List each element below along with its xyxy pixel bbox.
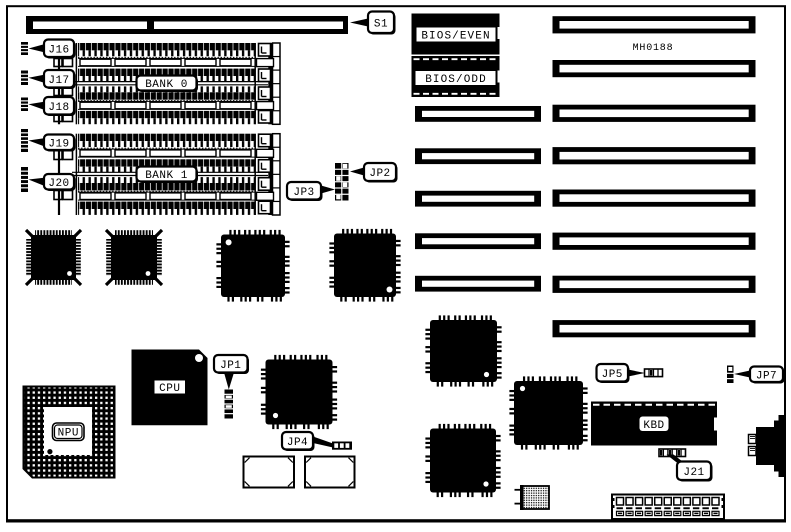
svg-text:JP1: JP1 <box>220 360 241 372</box>
svg-text:J17: J17 <box>48 75 69 87</box>
svg-text:BIOS/ODD: BIOS/ODD <box>425 74 487 86</box>
svg-text:JP3: JP3 <box>293 187 314 199</box>
svg-text:CPU: CPU <box>159 383 180 395</box>
svg-text:J18: J18 <box>48 102 69 114</box>
svg-text:JP4: JP4 <box>287 437 308 449</box>
svg-text:J19: J19 <box>48 138 69 150</box>
svg-text:BANK 1: BANK 1 <box>145 170 188 182</box>
svg-text:J16: J16 <box>48 44 69 56</box>
svg-text:NPU: NPU <box>58 428 79 440</box>
svg-text:BANK 0: BANK 0 <box>145 79 188 91</box>
svg-text:JP2: JP2 <box>369 168 390 180</box>
svg-text:JP7: JP7 <box>756 370 777 382</box>
svg-text:BIOS/EVEN: BIOS/EVEN <box>421 31 490 43</box>
svg-text:J21: J21 <box>683 467 704 479</box>
svg-text:S1: S1 <box>374 18 388 30</box>
svg-text:JP5: JP5 <box>602 369 623 381</box>
svg-text:KBD: KBD <box>643 420 664 432</box>
svg-text:MH0188: MH0188 <box>633 43 674 54</box>
svg-text:J20: J20 <box>48 178 69 190</box>
